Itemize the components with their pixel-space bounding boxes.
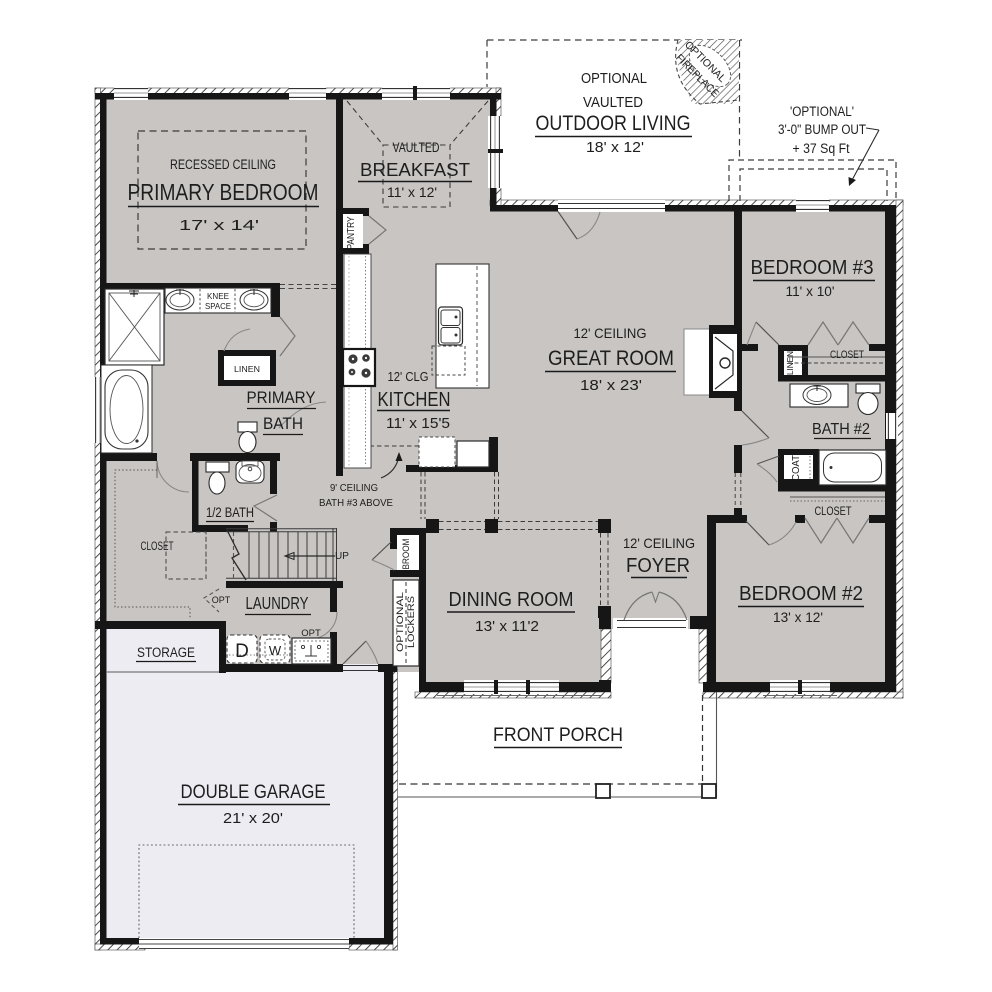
svg-text:21' x 20': 21' x 20' bbox=[223, 810, 283, 827]
svg-text:COAT: COAT bbox=[791, 455, 802, 481]
svg-text:LAUNDRY: LAUNDRY bbox=[246, 593, 309, 613]
svg-text:11' x 15'5: 11' x 15'5 bbox=[386, 415, 450, 432]
svg-text:CLOSET: CLOSET bbox=[815, 506, 852, 518]
svg-text:LINEN: LINEN bbox=[785, 351, 795, 375]
svg-text:W: W bbox=[269, 643, 282, 658]
svg-text:SPACE: SPACE bbox=[205, 301, 231, 311]
svg-text:VAULTED: VAULTED bbox=[583, 95, 643, 111]
svg-text:UP: UP bbox=[335, 551, 349, 562]
svg-text:DOUBLE GARAGE: DOUBLE GARAGE bbox=[181, 782, 326, 803]
svg-text:18' x 12': 18' x 12' bbox=[586, 139, 644, 156]
svg-text:OUTDOOR LIVING: OUTDOOR LIVING bbox=[536, 112, 691, 135]
svg-text:OPT: OPT bbox=[301, 628, 321, 639]
svg-text:KNEE: KNEE bbox=[207, 291, 229, 301]
svg-text:DINING ROOM: DINING ROOM bbox=[449, 588, 574, 611]
svg-text:PANTRY: PANTRY bbox=[346, 216, 357, 249]
svg-text:BREAKFAST: BREAKFAST bbox=[360, 159, 470, 180]
svg-text:1/2 BATH: 1/2 BATH bbox=[206, 504, 254, 520]
svg-text:BEDROOM #2: BEDROOM #2 bbox=[739, 582, 863, 605]
svg-text:BATH #2: BATH #2 bbox=[812, 421, 870, 438]
svg-text:CLOSET: CLOSET bbox=[830, 349, 864, 361]
svg-text:OPTIONAL: OPTIONAL bbox=[581, 71, 647, 87]
svg-text:BEDROOM #3: BEDROOM #3 bbox=[751, 256, 874, 279]
svg-text:17' x 14': 17' x 14' bbox=[179, 217, 259, 234]
svg-text:BROOM: BROOM bbox=[401, 538, 412, 569]
svg-text:STORAGE: STORAGE bbox=[137, 645, 195, 660]
svg-text:FOYER: FOYER bbox=[626, 555, 690, 577]
svg-text:BATH: BATH bbox=[263, 415, 303, 433]
svg-text:VAULTED: VAULTED bbox=[393, 140, 440, 155]
svg-text:LOCKERS: LOCKERS bbox=[406, 596, 417, 648]
svg-text:OPT: OPT bbox=[212, 595, 231, 605]
svg-text:9' CEILING: 9' CEILING bbox=[330, 482, 378, 494]
svg-text:PRIMARY BEDROOM: PRIMARY BEDROOM bbox=[128, 179, 319, 205]
svg-text:FRONT PORCH: FRONT PORCH bbox=[493, 725, 623, 746]
svg-text:3'-0" BUMP OUT: 3'-0" BUMP OUT bbox=[778, 122, 866, 137]
svg-text:D: D bbox=[235, 641, 249, 662]
svg-text:13' x 12': 13' x 12' bbox=[773, 610, 823, 625]
svg-text:OPTIONAL: OPTIONAL bbox=[395, 592, 406, 652]
svg-text:BATH #3 ABOVE: BATH #3 ABOVE bbox=[319, 497, 393, 509]
svg-text:12' CEILING: 12' CEILING bbox=[623, 535, 695, 551]
svg-text:11' x 12': 11' x 12' bbox=[387, 185, 437, 200]
svg-text:13' x 11'2: 13' x 11'2 bbox=[475, 618, 539, 635]
svg-text:RECESSED CEILING: RECESSED CEILING bbox=[170, 157, 276, 172]
svg-text:GREAT ROOM: GREAT ROOM bbox=[548, 346, 674, 370]
svg-text:12' CLG: 12' CLG bbox=[388, 369, 429, 384]
svg-text:'OPTIONAL': 'OPTIONAL' bbox=[790, 104, 854, 119]
svg-text:PRIMARY: PRIMARY bbox=[247, 389, 316, 407]
svg-text:12' CEILING: 12' CEILING bbox=[574, 325, 647, 341]
svg-text:KITCHEN: KITCHEN bbox=[378, 388, 451, 411]
svg-text:CLOSET: CLOSET bbox=[141, 541, 174, 553]
svg-text:11' x 10': 11' x 10' bbox=[786, 284, 835, 299]
svg-text:18' x 23': 18' x 23' bbox=[580, 377, 642, 394]
svg-text:+ 37 Sq Ft: + 37 Sq Ft bbox=[793, 141, 850, 156]
svg-text:LINEN: LINEN bbox=[234, 364, 260, 374]
